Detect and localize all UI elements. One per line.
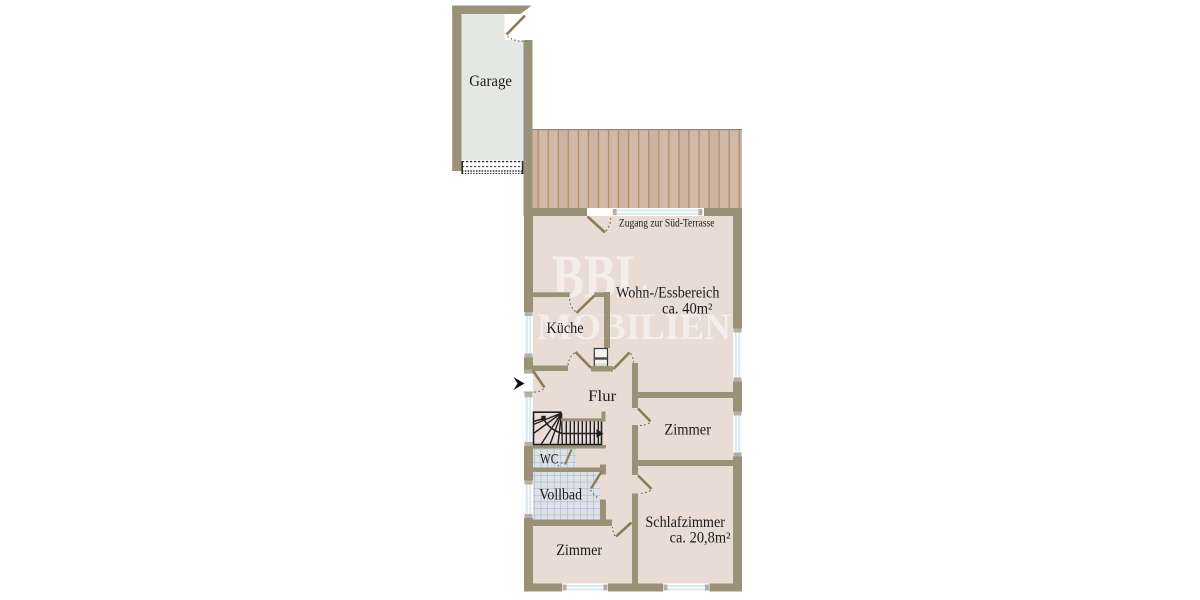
- svg-text:ca. 40m²: ca. 40m²: [662, 301, 713, 318]
- svg-text:Zugang zur Süd-Terrasse: Zugang zur Süd-Terrasse: [619, 217, 715, 230]
- svg-text:ca. 20,8m²: ca. 20,8m²: [670, 530, 731, 547]
- svg-text:Wohn-/Essbereich: Wohn-/Essbereich: [616, 285, 720, 302]
- svg-text:Küche: Küche: [547, 320, 584, 337]
- svg-text:WC: WC: [540, 451, 559, 467]
- svg-text:Zimmer: Zimmer: [556, 542, 602, 559]
- svg-text:Flur: Flur: [588, 388, 616, 405]
- svg-text:Zimmer: Zimmer: [664, 421, 711, 438]
- svg-text:Garage: Garage: [469, 73, 512, 90]
- svg-text:Vollbad: Vollbad: [539, 486, 582, 503]
